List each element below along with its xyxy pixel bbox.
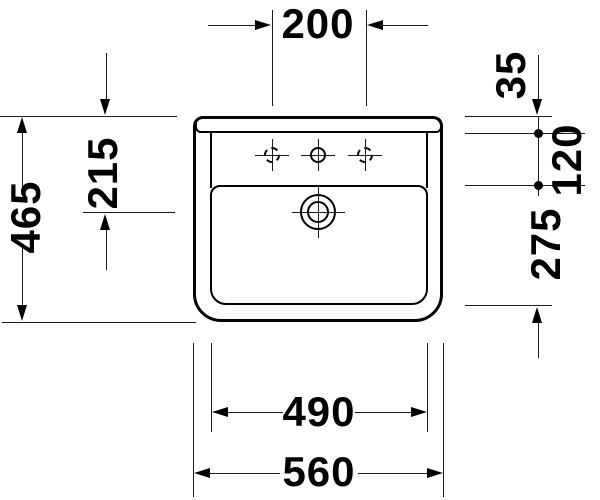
dim-490-stem-left: [228, 412, 283, 413]
dim-560-stem-left: [210, 473, 280, 474]
dim-465-ext-bottom: [2, 322, 196, 323]
dim-200-ext-left: [272, 10, 273, 106]
dim-215-stem-bottom: [106, 230, 107, 270]
rear-ledge-outline: [195, 117, 442, 133]
drain-crosshair-h: [292, 212, 345, 213]
tap-deck-left-edge: [210, 133, 212, 188]
dim-label-rear-ledge: 35: [489, 15, 533, 135]
dim-275-arrow-up: [532, 307, 542, 323]
dim-490-stem-right: [355, 412, 411, 413]
dim-465-arrow-top: [17, 117, 27, 133]
dim-200-arrow-left: [255, 20, 271, 30]
dim-right-ext-bowl-bottom: [465, 305, 552, 306]
tap-deck-right-edge: [426, 133, 428, 188]
dim-35-stem: [538, 55, 539, 99]
dim-label-overall-width: 560: [279, 450, 359, 494]
dim-label-overall-depth: 465: [4, 157, 48, 277]
dim-465-arrow-bottom: [17, 305, 27, 321]
dim-490-arrow-left: [212, 407, 228, 417]
dim-215-stem-top: [106, 53, 107, 99]
dim-label-bowl-depth: 275: [524, 184, 568, 304]
dim-560-arrow-left: [194, 468, 210, 478]
dim-465-stem-bottom: [22, 248, 23, 305]
dim-200-stem-right: [380, 25, 428, 26]
dim-215-ext-drain-center: [83, 212, 175, 213]
tap-hole-center-crosshair-v: [318, 139, 319, 171]
dim-label-bowl-width: 490: [279, 390, 359, 434]
tap-hole-left-crosshair-v: [272, 139, 273, 171]
dim-490-ext-left: [211, 343, 212, 432]
dim-dot-ledge: [534, 129, 543, 138]
dim-215-arrow-up: [100, 214, 110, 230]
dim-200-stem-left: [208, 25, 260, 26]
dim-560-stem-right: [358, 473, 427, 474]
dim-275-stem: [538, 322, 539, 358]
dim-35-arrow-down: [532, 99, 542, 115]
dim-560-arrow-right: [427, 468, 443, 478]
drain-crosshair-v: [318, 186, 319, 238]
tap-hole-right-crosshair-v: [365, 139, 366, 171]
dim-490-arrow-right: [411, 407, 427, 417]
washbasin-technical-drawing: 200 465 215 35 120 275 490 560: [0, 0, 600, 500]
dim-490-ext-right: [427, 343, 428, 432]
dim-label-tap-spacing: 200: [278, 2, 358, 46]
